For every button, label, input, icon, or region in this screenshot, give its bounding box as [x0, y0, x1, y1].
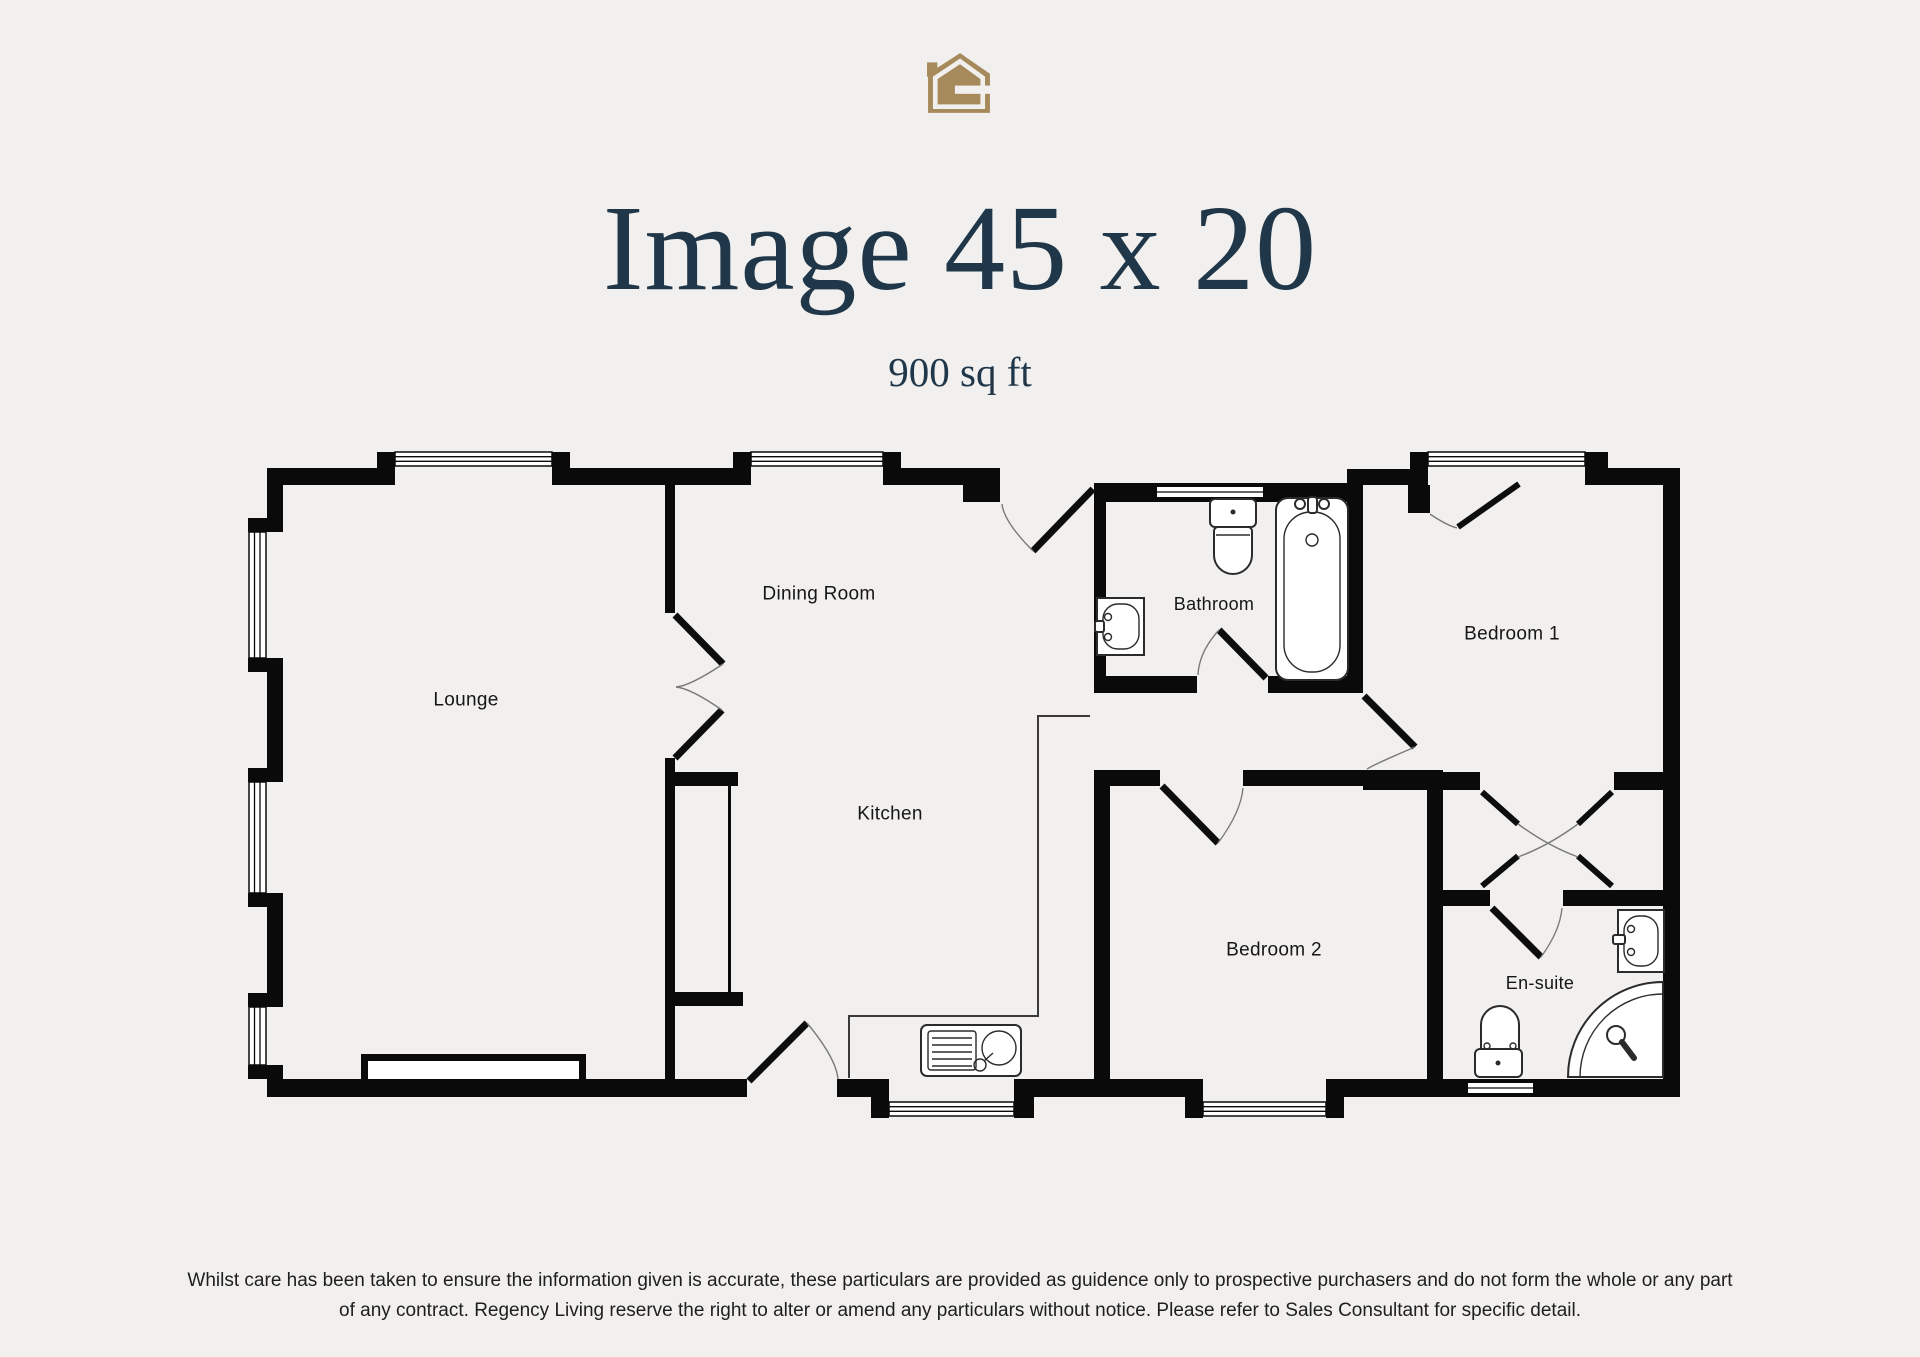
dressing-hall-double-doors: [1482, 792, 1612, 886]
floorplan-page: Image 45 x 20 900 sq ft: [0, 0, 1920, 1357]
bathroom-basin-icon: [1095, 598, 1144, 655]
bedroom2-door: [1162, 786, 1243, 843]
window-icon: [751, 452, 883, 466]
room-label-bathroom: Bathroom: [1174, 594, 1254, 614]
ensuite-toilet-icon: [1475, 1006, 1522, 1077]
disclaimer: Whilst care has been taken to ensure the…: [0, 1266, 1920, 1327]
window-icon: [249, 532, 266, 658]
ensuite-basin-icon: [1613, 910, 1664, 972]
shower-icon: [1568, 982, 1663, 1077]
room-label-dining-room: Dining Room: [762, 584, 875, 605]
window-icon: [1428, 452, 1585, 466]
room-label-lounge: Lounge: [433, 690, 498, 711]
window-icon: [249, 1007, 266, 1065]
french-doors: [675, 615, 723, 758]
bathroom-door: [1198, 630, 1266, 678]
kitchen-door: [749, 1023, 838, 1081]
bathroom-toilet-icon: [1210, 499, 1256, 574]
kitchen-sink-icon: [921, 1025, 1021, 1076]
kitchen-counter: [849, 716, 1090, 1078]
room-label-bedroom-2: Bedroom 2: [1226, 940, 1322, 961]
disclaimer-line-2: of any contract. Regency Living reserve …: [0, 1296, 1920, 1326]
window-icon: [249, 782, 266, 893]
bedroom1-cupboard-door: [1430, 484, 1519, 528]
ensuite-door: [1492, 908, 1562, 957]
floor-plan: Lounge Dining Room Kitchen Bathroom Bedr…: [0, 0, 1920, 1357]
room-label-en-suite: En-suite: [1506, 973, 1574, 993]
window-icon: [889, 1102, 1014, 1116]
lounge-bay-window: [361, 1054, 586, 1079]
window-icon: [1157, 487, 1263, 497]
room-label-bedroom-1: Bedroom 1: [1464, 624, 1560, 645]
room-label-kitchen: Kitchen: [857, 804, 922, 825]
bathtub-icon: [1276, 497, 1348, 680]
entrance-door: [1002, 489, 1093, 551]
disclaimer-line-1: Whilst care has been taken to ensure the…: [0, 1266, 1920, 1296]
window-icon: [1468, 1083, 1533, 1093]
bedroom1-door: [1364, 696, 1415, 769]
window-icon: [1203, 1102, 1326, 1116]
window-icon: [395, 452, 552, 466]
